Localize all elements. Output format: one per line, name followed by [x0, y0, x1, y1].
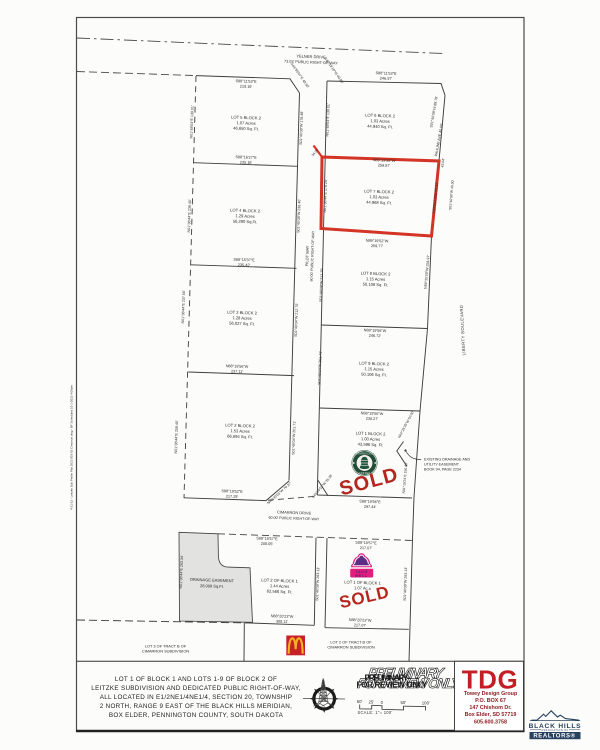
svg-text:N89°19'52"W: N89°19'52"W — [366, 239, 389, 244]
svg-text:259.77': 259.77' — [371, 244, 384, 248]
svg-text:S88°19'52"E: S88°19'52"E — [221, 489, 243, 494]
svg-text:S88°11'53"E: S88°11'53"E — [235, 79, 257, 84]
svg-text:FOR REVIEW ONLY: FOR REVIEW ONLY — [357, 680, 428, 689]
svg-text:S88°16'27"E: S88°16'27"E — [235, 155, 257, 160]
svg-text:44,968 Sq. Ft.: 44,968 Sq. Ft. — [366, 200, 392, 206]
svg-text:2 NORTH, RANGE 9 EAST OF: 2 NORTH, RANGE 9 EAST OF THE BLACK HILLS… — [100, 703, 292, 710]
svg-text:237.11': 237.11' — [231, 369, 243, 373]
svg-text:43,596 Sq. Ft.: 43,596 Sq. Ft. — [358, 442, 384, 448]
svg-text:28,009 Sq.Ft.: 28,009 Sq.Ft. — [200, 583, 224, 589]
svg-text:N88°19'56"W: N88°19'56"W — [364, 328, 387, 333]
svg-text:REALTORS®: REALTORS® — [533, 733, 575, 740]
svg-text:S88°15'37"E: S88°15'37"E — [233, 258, 255, 263]
svg-text:BELL: BELL — [355, 574, 368, 578]
svg-text:62,566 Sq. Ft.: 62,566 Sq. Ft. — [267, 589, 293, 595]
svg-text:Box Elder, SD 57719: Box Elder, SD 57719 — [465, 712, 517, 718]
svg-text:N88°19'56"W: N88°19'56"W — [361, 411, 384, 416]
svg-text:S88°11'53"E: S88°11'53"E — [375, 71, 397, 76]
svg-text:LEITZKE SUBDIVISION AND DED: LEITZKE SUBDIVISION AND DEDICATED PUBLIC… — [91, 685, 300, 692]
svg-text:N88°19'56"W: N88°19'56"W — [226, 364, 249, 369]
svg-text:N88°20'23"W: N88°20'23"W — [271, 614, 294, 619]
svg-text:100': 100' — [422, 701, 430, 706]
svg-text:147 Chishom Dr.: 147 Chishom Dr. — [469, 705, 512, 711]
svg-text:217.07': 217.07' — [360, 546, 373, 550]
svg-text:208.05': 208.05' — [261, 542, 274, 546]
svg-text:ASSOCIATION OF: ASSOCIATION OF — [541, 729, 568, 732]
svg-text:S88°19'57"E: S88°19'57"E — [355, 541, 377, 546]
svg-text:297.44': 297.44' — [364, 505, 377, 509]
svg-text:605.600.3758: 605.600.3758 — [474, 719, 507, 725]
svg-text:235.42': 235.42' — [238, 263, 251, 267]
svg-text:308.11': 308.11' — [276, 619, 288, 623]
svg-text:BOOK 94, PAGE 2234: BOOK 94, PAGE 2234 — [424, 468, 461, 472]
svg-text:219.16': 219.16' — [240, 84, 253, 88]
svg-text:BOX ELDER, PENNINGTON COUNT: BOX ELDER, PENNINGTON COUNTY, SOUTH DAKO… — [109, 712, 284, 719]
svg-text:ALL LOCATED IN E1/2NE1/4NE1: ALL LOCATED IN E1/2NE1/4NE1/4, SECTION 2… — [100, 694, 293, 701]
svg-text:50,106 Sq. Ft.: 50,106 Sq. Ft. — [363, 282, 389, 288]
svg-text:56,290 Sq.Ft.: 56,290 Sq.Ft. — [233, 219, 258, 225]
svg-text:Towey Design Group: Towey Design Group — [464, 691, 518, 697]
svg-text:25': 25' — [368, 700, 374, 705]
svg-text:46,650 Sq. Ft.: 46,650 Sq. Ft. — [233, 126, 259, 132]
svg-text:P.O. BOX 67: P.O. BOX 67 — [475, 698, 506, 704]
svg-text:LOT 1 OF BLOCK 1 AND LOT: LOT 1 OF BLOCK 1 AND LOTS 1-9 OF BLOCK 2… — [115, 676, 277, 683]
svg-text:217.07': 217.07' — [354, 623, 367, 627]
svg-text:CIMARRON SUBDIVISION: CIMARRON SUBDIVISION — [327, 645, 375, 650]
svg-text:UTILITY EASEMENT: UTILITY EASEMENT — [424, 463, 460, 467]
svg-text:CIMARRON SUBDIVISION: CIMARRON SUBDIVISION — [142, 649, 190, 654]
svg-text:50': 50' — [357, 699, 363, 704]
svg-text:44,940 Sq. Ft.: 44,940 Sq. Ft. — [367, 124, 393, 130]
svg-text:S88°19'56"E: S88°19'56"E — [359, 499, 381, 504]
svg-text:4-21-22 - Leitzke Sub Prelim: 4-21-22 - Leitzke Sub Prelim Plat 2021-0… — [70, 385, 74, 511]
svg-text:50,106 Sq. Ft.: 50,106 Sq. Ft. — [361, 372, 387, 378]
svg-text:SCALE: 1"= 100': SCALE: 1"= 100' — [357, 710, 392, 715]
svg-text:230.27': 230.27' — [366, 417, 379, 421]
svg-text:246.72': 246.72' — [369, 334, 382, 338]
svg-text:246.97': 246.97' — [380, 76, 393, 80]
svg-text:STARBUCKS: STARBUCKS — [356, 452, 373, 455]
svg-text:PILOT WAY: PILOT WAY — [304, 245, 310, 266]
svg-text:N88°20'23"W: N88°20'23"W — [349, 618, 372, 623]
svg-text:EXISTING DRAINAGE AND: EXISTING DRAINAGE AND — [424, 458, 470, 462]
svg-text:S88°19'57"E: S88°19'57"E — [256, 536, 278, 541]
svg-text:235.16': 235.16' — [240, 160, 253, 164]
svg-text:66,694 Sq. Ft.: 66,694 Sq. Ft. — [227, 434, 253, 440]
svg-text:56,027 Sq. Ft.: 56,027 Sq. Ft. — [229, 321, 255, 327]
svg-text:217.29': 217.29' — [226, 494, 239, 498]
svg-text:259.87': 259.87' — [378, 163, 391, 168]
svg-text:50': 50' — [400, 700, 406, 705]
